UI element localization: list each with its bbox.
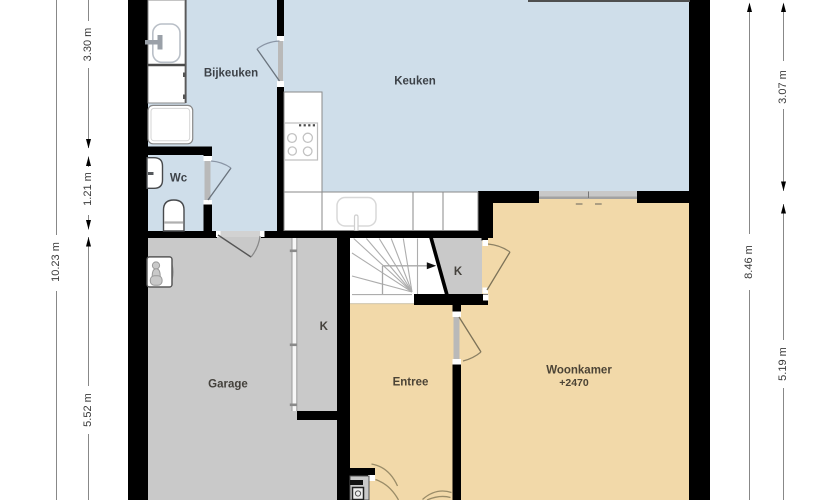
svg-text:8.46 m: 8.46 m: [743, 245, 755, 279]
svg-text:K: K: [454, 266, 463, 278]
svg-text:K: K: [320, 321, 329, 333]
svg-text:+2470: +2470: [559, 377, 589, 389]
svg-text:3.07 m: 3.07 m: [777, 70, 789, 104]
svg-text:Keuken: Keuken: [394, 76, 436, 88]
svg-text:Wc: Wc: [170, 173, 188, 185]
svg-text:10.23 m: 10.23 m: [50, 242, 62, 282]
svg-text:Bijkeuken: Bijkeuken: [204, 68, 258, 80]
svg-text:Woonkamer: Woonkamer: [546, 365, 612, 377]
svg-text:1.21 m: 1.21 m: [82, 172, 94, 206]
svg-text:Entree: Entree: [393, 377, 429, 389]
svg-text:3.30 m: 3.30 m: [82, 28, 94, 62]
svg-text:5.52 m: 5.52 m: [82, 393, 94, 427]
svg-text:Garage: Garage: [208, 379, 248, 391]
svg-text:5.19 m: 5.19 m: [777, 347, 789, 381]
